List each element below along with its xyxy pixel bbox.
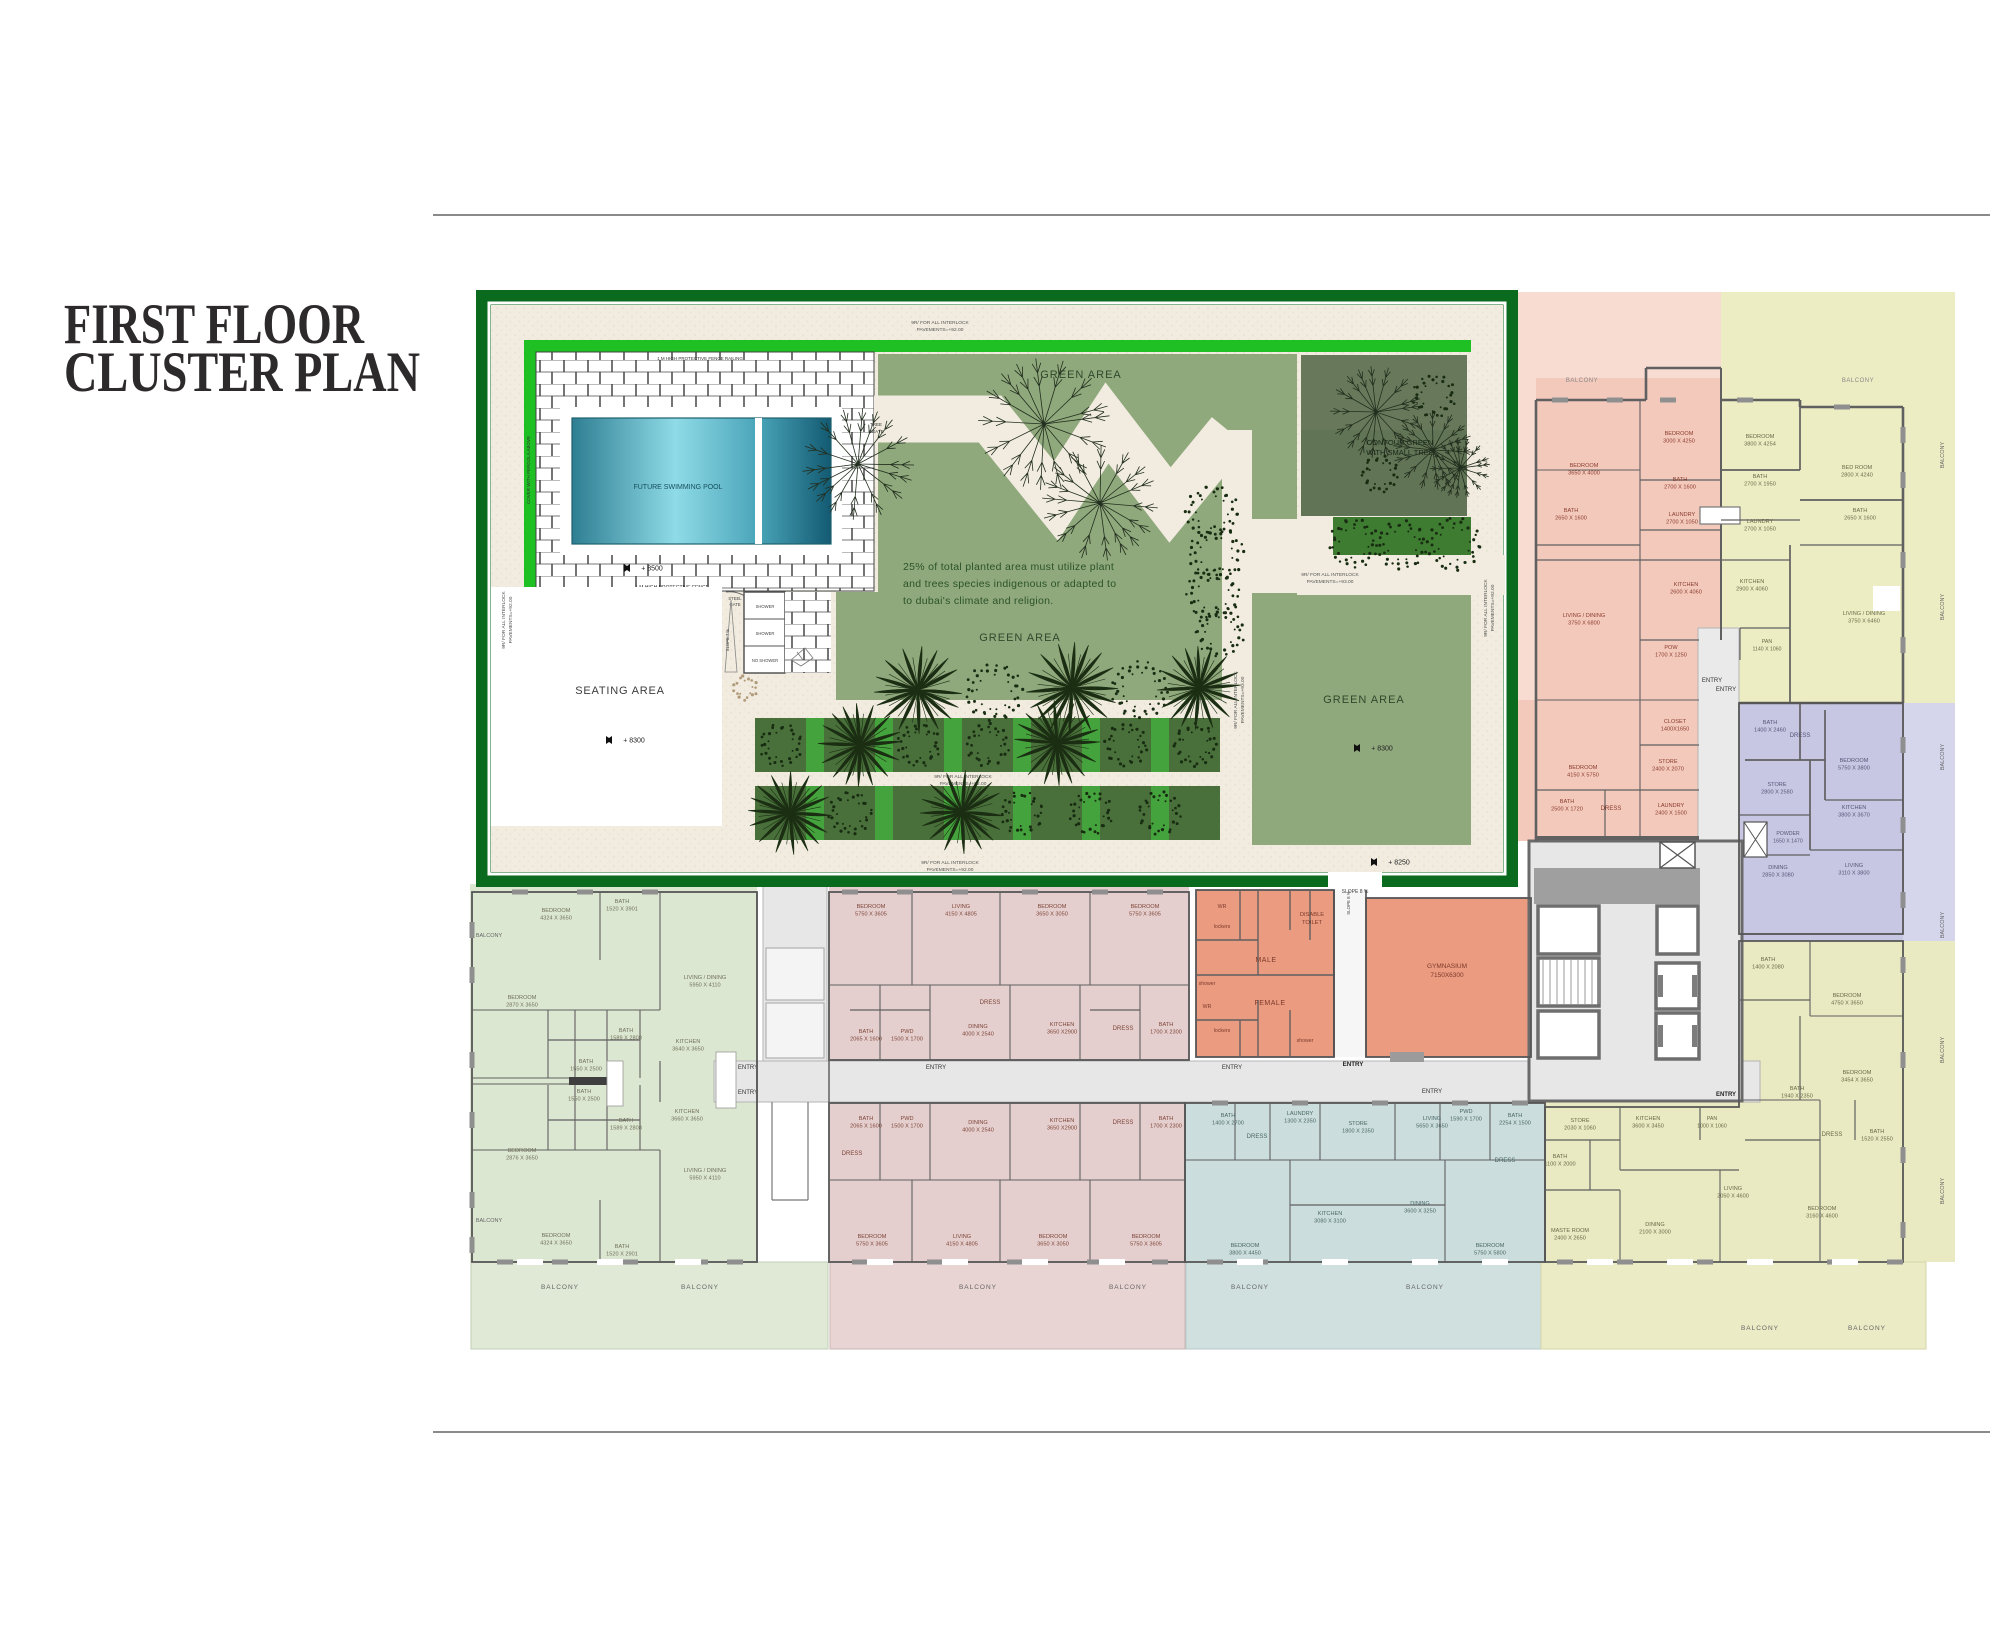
svg-text:LIVING / DINING: LIVING / DINING [1843,611,1885,617]
svg-text:ENTRY: ENTRY [926,1065,946,1071]
svg-text:4150 X 4805: 4150 X 4805 [946,1242,978,1248]
svg-text:POW: POW [1664,645,1678,651]
svg-text:9R/ FOR ALL INTERLOCK: 9R/ FOR ALL INTERLOCK [934,774,992,780]
svg-text:BALCONY: BALCONY [1109,1284,1147,1291]
svg-text:DRESS: DRESS [1790,733,1811,739]
svg-text:2700 X 1950: 2700 X 1950 [1744,482,1776,488]
svg-text:BEDROOM: BEDROOM [1570,463,1599,469]
svg-text:BEDROOM: BEDROOM [1039,1234,1068,1240]
svg-text:2876 X 3650: 2876 X 3650 [506,1156,538,1162]
svg-text:BEDROOM: BEDROOM [508,995,537,1001]
svg-text:SLOPE 7 %: SLOPE 7 % [725,629,730,652]
svg-text:4000 X 2540: 4000 X 2540 [962,1128,994,1134]
svg-text:BEDROOM: BEDROOM [508,1148,537,1154]
svg-text:1650 X 1470: 1650 X 1470 [1773,839,1803,845]
svg-text:3650 X 3050: 3650 X 3050 [1036,912,1068,918]
svg-text:BEDROOM: BEDROOM [1476,1243,1505,1249]
svg-text:PAVEMENTS=+92.00: PAVEMENTS=+92.00 [508,596,514,643]
svg-text:5750 X 3605: 5750 X 3605 [856,1242,888,1248]
svg-text:1300 X 2350: 1300 X 2350 [1284,1119,1316,1125]
svg-text:BEDROOM: BEDROOM [1833,993,1862,999]
svg-text:+ 8300: + 8300 [623,738,645,745]
svg-text:2800 X 2580: 2800 X 2580 [1761,790,1793,796]
svg-text:GYMNASIUM: GYMNASIUM [1427,963,1467,970]
svg-text:NO SHOWER: NO SHOWER [752,658,778,663]
svg-text:PAVEMENTS=+92.00: PAVEMENTS=+92.00 [1490,584,1496,631]
svg-text:shower: shower [1297,1038,1314,1044]
svg-text:2870 X 3650: 2870 X 3650 [506,1003,538,1009]
svg-text:+ 8250: + 8250 [1388,860,1410,867]
svg-text:BALCONY: BALCONY [1566,378,1598,384]
svg-text:BEDROOM: BEDROOM [857,904,886,910]
svg-text:9R/ FOR ALL INTERLOCK: 9R/ FOR ALL INTERLOCK [911,320,969,326]
svg-text:3080 X 3100: 3080 X 3100 [1314,1219,1346,1225]
svg-text:ENTRY: ENTRY [738,1090,758,1096]
svg-text:WR: WR [1218,904,1227,910]
svg-text:2800 X 4240: 2800 X 4240 [1841,473,1873,479]
svg-text:BEDROOM: BEDROOM [1038,904,1067,910]
svg-text:POWDER: POWDER [1776,831,1800,837]
svg-text:3650 X2900: 3650 X2900 [1047,1126,1077,1132]
svg-text:BALCONY: BALCONY [476,933,503,939]
svg-text:DINING: DINING [1410,1201,1430,1207]
svg-text:5950 X 4110: 5950 X 4110 [689,1176,720,1182]
svg-text:LAUNDRY: LAUNDRY [1669,512,1696,518]
svg-text:BALCONY: BALCONY [1406,1284,1444,1291]
svg-text:2400 X 2070: 2400 X 2070 [1652,767,1684,773]
svg-text:BATH: BATH [1790,1086,1804,1092]
svg-text:FEMALE: FEMALE [1254,1000,1285,1007]
svg-text:4150 X 5750: 4150 X 5750 [1567,773,1599,779]
svg-text:PWD: PWD [900,1029,913,1035]
svg-text:2650 X 1600: 2650 X 1600 [1844,516,1876,522]
svg-text:KITCHEN: KITCHEN [675,1109,699,1115]
svg-text:BATH: BATH [619,1118,633,1124]
svg-text:BATH: BATH [1560,799,1574,805]
svg-text:DINING: DINING [968,1120,988,1126]
svg-text:BATH: BATH [1761,957,1775,963]
svg-text:1400 X 2700: 1400 X 2700 [1212,1121,1244,1127]
svg-text:4150 X 4805: 4150 X 4805 [945,912,977,918]
svg-text:LIVING: LIVING [952,904,970,910]
svg-text:BALCONY: BALCONY [1940,912,1946,939]
svg-text:BATH: BATH [1553,1154,1567,1160]
svg-text:9R/ FOR ALL INTERLOCK: 9R/ FOR ALL INTERLOCK [501,590,507,648]
svg-text:DINING: DINING [1768,865,1788,871]
svg-text:GREEN AREA: GREEN AREA [1040,369,1122,381]
svg-text:4324 X 3650: 4324 X 3650 [540,916,572,922]
svg-text:STORE: STORE [1348,1121,1367,1127]
svg-text:BATH: BATH [859,1116,873,1122]
svg-text:1500 X 1700: 1500 X 1700 [891,1037,923,1043]
svg-text:GREEN AREA: GREEN AREA [1323,694,1405,706]
svg-text:BATH: BATH [1159,1022,1173,1028]
svg-text:BEDROOM: BEDROOM [542,908,571,914]
svg-text:BEDROOM: BEDROOM [1843,1070,1872,1076]
svg-text:3660 X 3650: 3660 X 3650 [671,1117,703,1123]
svg-text:LAUNDRY: LAUNDRY [1287,1111,1314,1117]
svg-text:ENTRY: ENTRY [1343,1061,1365,1068]
svg-text:3640 X 3650: 3640 X 3650 [672,1047,704,1053]
svg-text:BATH: BATH [1564,508,1578,514]
svg-text:PAVEMENTS=+93.00: PAVEMENTS=+93.00 [1307,579,1354,585]
svg-text:and trees species indigenous o: and trees species indigenous or adapted … [903,578,1116,590]
svg-text:STORE: STORE [1658,759,1677,765]
svg-text:BEDROOM: BEDROOM [1132,1234,1161,1240]
svg-text:LAUNDRY: LAUNDRY [1658,803,1685,809]
svg-text:1700 X 1250: 1700 X 1250 [1655,653,1687,659]
svg-text:TOILET: TOILET [1302,920,1323,926]
svg-text:LAUNDRY: LAUNDRY [1747,519,1774,525]
svg-text:1550 X 2500: 1550 X 2500 [570,1067,602,1073]
svg-text:BALCONY: BALCONY [476,1218,503,1224]
svg-text:1520 X 2901: 1520 X 2901 [606,1252,638,1258]
svg-text:BATH: BATH [577,1089,591,1095]
svg-text:BATH: BATH [579,1059,593,1065]
svg-text:ENTRY: ENTRY [1422,1089,1442,1095]
svg-text:1400 X 2080: 1400 X 2080 [1752,965,1784,971]
svg-text:2050 X 4600: 2050 X 4600 [1717,1194,1749,1200]
svg-text:1590 X 1700: 1590 X 1700 [1450,1117,1482,1123]
svg-text:BEDROOM: BEDROOM [1840,758,1869,764]
svg-text:2254 X 1500: 2254 X 1500 [1499,1121,1531,1127]
svg-text:1000 X 1060: 1000 X 1060 [1697,1124,1727,1130]
svg-text:BALCONY: BALCONY [541,1284,579,1291]
svg-text:3160 X 4600: 3160 X 4600 [1806,1214,1838,1220]
svg-text:BEDROOM: BEDROOM [1131,904,1160,910]
svg-text:SHOWER: SHOWER [756,631,775,636]
svg-text:1589 X 2808: 1589 X 2808 [610,1126,642,1132]
svg-text:PAVEMENTS=+92.00: PAVEMENTS=+92.00 [917,327,964,333]
svg-text:PAVEMENTS=+93.00: PAVEMENTS=+93.00 [1240,676,1246,723]
svg-text:BEDROOM: BEDROOM [542,1233,571,1239]
svg-text:DRESS: DRESS [842,1151,863,1157]
svg-text:GREEN AREA: GREEN AREA [979,632,1061,644]
svg-text:BATH: BATH [1508,1113,1522,1119]
svg-text:2500 X 1720: 2500 X 1720 [1551,807,1583,813]
svg-text:1520 X 3901: 1520 X 3901 [606,907,638,913]
svg-text:BATH: BATH [1853,508,1867,514]
svg-text:CLUSTER PLAN: CLUSTER PLAN [64,341,420,404]
svg-text:BATH: BATH [1221,1113,1235,1119]
svg-text:BALCONY: BALCONY [1848,1325,1886,1332]
svg-text:4750 X 3650: 4750 X 3650 [1831,1001,1863,1007]
svg-text:FUTURE SWIMMING POOL: FUTURE SWIMMING POOL [633,484,722,491]
svg-text:3600 X 3450: 3600 X 3450 [1632,1124,1664,1130]
svg-text:2400 X 2650: 2400 X 2650 [1554,1236,1586,1242]
svg-text:2850 X 3080: 2850 X 3080 [1762,873,1794,879]
svg-text:KITCHEN: KITCHEN [1842,805,1866,811]
svg-text:2030 X 1060: 2030 X 1060 [1564,1126,1596,1132]
svg-text:2600 X 4060: 2600 X 4060 [1670,590,1702,596]
svg-text:SEATING AREA: SEATING AREA [575,685,664,697]
svg-text:BATH: BATH [619,1028,633,1034]
svg-text:ENTRY: ENTRY [1716,1092,1736,1098]
svg-text:1800 X 2350: 1800 X 2350 [1342,1129,1374,1135]
svg-text:3650 X 4000: 3650 X 4000 [1568,471,1600,477]
svg-text:ENTRY: ENTRY [1702,678,1722,684]
svg-text:1400X1650: 1400X1650 [1661,727,1690,733]
svg-text:BED ROOM: BED ROOM [1842,465,1873,471]
svg-text:KITCHEN: KITCHEN [1740,579,1764,585]
svg-text:KITCHEN: KITCHEN [1674,582,1698,588]
svg-text:DISABLE: DISABLE [1300,912,1324,918]
svg-text:BALCONY: BALCONY [1940,1178,1946,1205]
svg-text:1520 X 2550: 1520 X 2550 [1861,1137,1893,1143]
svg-text:PWD: PWD [900,1116,913,1122]
svg-text:KITCHEN: KITCHEN [1318,1211,1342,1217]
svg-text:1 M HIGH PROTECTIVE FENCE RAIL: 1 M HIGH PROTECTIVE FENCE RAILING [657,356,743,361]
svg-text:3800 X 4254: 3800 X 4254 [1744,442,1776,448]
svg-text:2400 X 1500: 2400 X 1500 [1655,811,1687,817]
svg-text:KITCHEN: KITCHEN [676,1039,700,1045]
svg-text:DINING: DINING [1645,1222,1665,1228]
svg-text:lockers: lockers [1214,1028,1231,1034]
svg-text:5750 X 3605: 5750 X 3605 [855,912,887,918]
svg-text:2065 X 1600: 2065 X 1600 [850,1037,882,1043]
svg-text:BALCONY: BALCONY [1231,1284,1269,1291]
svg-text:shower: shower [1199,981,1216,987]
svg-text:SLOPE 8 %: SLOPE 8 % [1346,891,1351,915]
svg-text:BALCONY: BALCONY [1940,744,1946,771]
svg-text:BEDROOM: BEDROOM [858,1234,887,1240]
svg-text:BALCONY: BALCONY [1741,1325,1779,1332]
svg-text:2065 X 1600: 2065 X 1600 [850,1124,882,1130]
svg-text:ENTRY: ENTRY [738,1065,758,1071]
svg-text:BATH: BATH [1763,720,1777,726]
svg-text:BEDROOM: BEDROOM [1746,434,1775,440]
svg-text:5950 X 4110: 5950 X 4110 [689,983,720,989]
svg-text:DRESS: DRESS [1601,806,1622,812]
svg-text:BATH: BATH [1870,1129,1884,1135]
svg-text:3110 X 3800: 3110 X 3800 [1838,871,1869,877]
svg-text:MASTE ROOM: MASTE ROOM [1551,1228,1589,1234]
svg-text:BATH: BATH [615,899,629,905]
svg-text:4324 X 3650: 4324 X 3650 [540,1241,572,1247]
svg-text:BATH: BATH [859,1029,873,1035]
svg-text:3650 X2900: 3650 X2900 [1047,1030,1077,1036]
svg-text:1589 X 2808: 1589 X 2808 [610,1036,642,1042]
svg-text:2700 X 1600: 2700 X 1600 [1664,485,1696,491]
svg-text:9R/ FOR ALL INTERLOCK: 9R/ FOR ALL INTERLOCK [1483,578,1489,636]
svg-text:DRESS: DRESS [1495,1158,1516,1164]
svg-text:LIVING / DINING: LIVING / DINING [684,1168,726,1174]
svg-text:BEDROOM: BEDROOM [1231,1243,1260,1249]
svg-text:BATH: BATH [1159,1116,1173,1122]
svg-text:1100 X 2000: 1100 X 2000 [1544,1162,1575,1168]
svg-text:25% of total planted area must: 25% of total planted area must utilize p… [903,561,1114,573]
svg-text:5750 X 3605: 5750 X 3605 [1129,912,1161,918]
svg-text:WR: WR [1203,1004,1212,1010]
svg-text:STEEL: STEEL [728,596,742,601]
svg-text:BATH: BATH [615,1244,629,1250]
svg-text:DRESS: DRESS [1113,1026,1134,1032]
svg-text:3800 X 3670: 3800 X 3670 [1838,813,1870,819]
svg-text:1500 X 1700: 1500 X 1700 [891,1124,923,1130]
svg-text:3800 X 4450: 3800 X 4450 [1229,1251,1261,1257]
svg-text:LIVING: LIVING [953,1234,971,1240]
svg-text:PAN: PAN [1762,639,1773,645]
svg-text:7150X6300: 7150X6300 [1430,972,1464,979]
svg-text:LIVING / DINING: LIVING / DINING [1563,613,1605,619]
svg-text:+ 8500: + 8500 [641,566,663,573]
svg-text:1700 X 2300: 1700 X 2300 [1150,1124,1182,1130]
svg-text:BALCONY: BALCONY [1940,1037,1946,1064]
svg-text:BATH: BATH [1753,474,1767,480]
svg-text:KITCHEN: KITCHEN [1050,1118,1074,1124]
svg-text:3750 X 6800: 3750 X 6800 [1568,621,1600,627]
svg-text:3454 X 3650: 3454 X 3650 [1841,1078,1873,1084]
svg-text:2900 X 4060: 2900 X 4060 [1736,587,1768,593]
svg-text:DRESS: DRESS [980,1000,1001,1006]
svg-text:SHOWER: SHOWER [756,604,775,609]
svg-text:1700 X 2300: 1700 X 2300 [1150,1030,1182,1036]
svg-text:5750 X 3800: 5750 X 3800 [1838,766,1870,772]
svg-text:LIVING / DINING: LIVING / DINING [684,975,726,981]
svg-text:5650 X 3650: 5650 X 3650 [1416,1124,1448,1130]
svg-text:STORE: STORE [1767,782,1786,788]
svg-text:CLOSET: CLOSET [1664,719,1687,725]
svg-text:2650 X 1600: 2650 X 1600 [1555,516,1587,522]
svg-text:DRESS: DRESS [1247,1134,1268,1140]
svg-text:1550 X 2500: 1550 X 2500 [568,1097,600,1103]
svg-text:PAVEMENTS=+92.00: PAVEMENTS=+92.00 [927,867,974,873]
svg-text:MALE: MALE [1255,957,1276,964]
svg-text:2700 X 1050: 2700 X 1050 [1666,520,1698,526]
svg-text:3000 X 4250: 3000 X 4250 [1663,439,1695,445]
svg-text:LIVING: LIVING [1423,1116,1441,1122]
svg-text:LIVING: LIVING [1724,1186,1742,1192]
svg-text:BALCONY: BALCONY [1940,594,1946,621]
svg-text:KITCHEN: KITCHEN [1636,1116,1660,1122]
svg-text:BEDROOM: BEDROOM [1665,431,1694,437]
svg-text:LIVING: LIVING [1845,863,1863,869]
svg-text:BATH: BATH [1673,477,1687,483]
svg-text:3650 X 3050: 3650 X 3050 [1037,1242,1069,1248]
svg-text:KITCHEN: KITCHEN [1050,1022,1074,1028]
svg-text:DRESS: DRESS [1822,1132,1843,1138]
svg-text:BALCONY: BALCONY [1842,378,1874,384]
svg-text:PAN: PAN [1707,1116,1718,1122]
svg-text:BALCONY: BALCONY [1940,442,1946,469]
svg-text:9R/ FOR ALL INTERLOCK: 9R/ FOR ALL INTERLOCK [1301,572,1359,578]
svg-text:3750 X 6460: 3750 X 6460 [1848,619,1880,625]
svg-text:STORE: STORE [1570,1118,1589,1124]
svg-text:2700 X 1050: 2700 X 1050 [1744,527,1776,533]
svg-text:to dubai's climate and religio: to dubai's climate and religion. [903,595,1054,607]
svg-text:BALCONY: BALCONY [959,1284,997,1291]
svg-text:BEDROOM: BEDROOM [1569,765,1598,771]
svg-text:ENTRY: ENTRY [1222,1065,1242,1071]
svg-text:BALCONY: BALCONY [681,1284,719,1291]
svg-text:+ 8300: + 8300 [1371,746,1393,753]
svg-text:DINING: DINING [968,1024,988,1030]
svg-text:ENTRY: ENTRY [1716,687,1736,693]
svg-text:1140 X 1060: 1140 X 1060 [1752,647,1781,653]
svg-text:DRESS: DRESS [1113,1120,1134,1126]
svg-text:5750 X 5800: 5750 X 5800 [1474,1251,1506,1257]
svg-text:2100 X 3000: 2100 X 3000 [1639,1230,1671,1236]
svg-text:1400 X 2460: 1400 X 2460 [1754,728,1786,734]
svg-text:COVER WITH PERGOLA ABOVE: COVER WITH PERGOLA ABOVE [526,436,531,504]
svg-text:9R/ FOR ALL INTERLOCK: 9R/ FOR ALL INTERLOCK [921,860,979,866]
svg-text:4000 X 2540: 4000 X 2540 [962,1032,994,1038]
svg-text:1940 X 2350: 1940 X 2350 [1781,1094,1813,1100]
svg-text:PWD: PWD [1459,1109,1472,1115]
svg-text:BEDROOM: BEDROOM [1808,1206,1837,1212]
svg-text:lockers: lockers [1214,924,1231,930]
svg-text:3600 X 3250: 3600 X 3250 [1404,1209,1436,1215]
svg-text:5750 X 3605: 5750 X 3605 [1130,1242,1162,1248]
